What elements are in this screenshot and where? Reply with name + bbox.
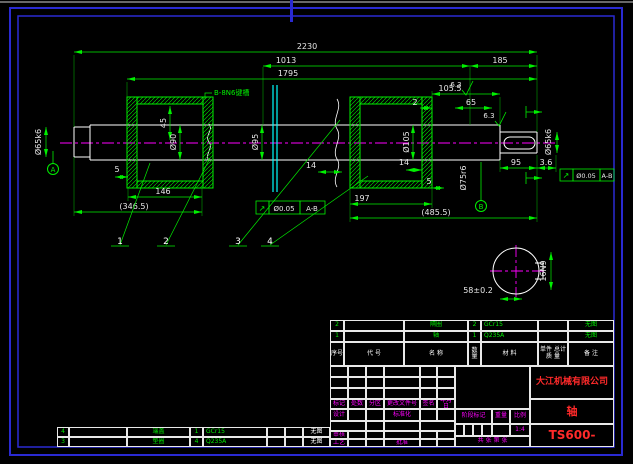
- tb-stage-mark-label: 阶段标记: [455, 409, 492, 424]
- bom2-qty: 4: [190, 437, 203, 447]
- tb-empty: [437, 439, 455, 447]
- roughness-value-1: 6.3: [450, 81, 461, 89]
- tb-empty: [348, 377, 366, 388]
- tb-empty: [330, 388, 348, 399]
- tb-role-design: 设计: [330, 409, 348, 421]
- bom2-weight1: [267, 437, 285, 447]
- tb-empty: [384, 377, 420, 388]
- runout-symbol-1: ↗: [259, 204, 266, 213]
- tb-empty: [420, 439, 437, 447]
- dim-plate14b: 14: [399, 158, 409, 167]
- tb-scale-value: 1:4: [510, 424, 530, 436]
- tolerance-datum-1: A-B: [306, 205, 318, 213]
- bom2-material: GCr15: [203, 427, 267, 437]
- dim-seg197: 197: [354, 194, 369, 203]
- tb-empty: [366, 421, 384, 431]
- dim-d95: Ø95: [250, 134, 260, 150]
- tb-empty: [420, 431, 437, 439]
- dim-right-end: 185: [492, 56, 507, 65]
- tb-empty-large: [455, 366, 530, 409]
- bom-header-name: 名 称: [404, 342, 468, 366]
- tb-empty: [330, 377, 348, 388]
- bom2-material: Q235A: [203, 437, 267, 447]
- tb-rev-sign: 签名: [420, 399, 437, 409]
- dim-mid: 1013: [276, 56, 296, 65]
- tb-empty: [348, 409, 366, 421]
- tb-empty: [437, 431, 455, 439]
- bom-header-qty: 数量: [468, 342, 481, 366]
- hub-right: [350, 97, 432, 188]
- dim-seg146: 146: [155, 187, 170, 196]
- bom-cell-qty: 2: [468, 320, 481, 331]
- tb-empty: [366, 377, 384, 388]
- roughness-value-2: 6.3: [483, 112, 494, 120]
- tb-company: 大江机械有限公司: [530, 366, 614, 399]
- bom-cell-material: Q235A: [481, 331, 538, 342]
- dim-chamfer-r: 5: [426, 177, 431, 186]
- bom-header-remark: 备 注: [568, 342, 614, 366]
- tb-rev-docno: 更改文件号: [384, 399, 420, 409]
- bom2-remark: 无图: [303, 437, 330, 447]
- datum-b: B: [476, 162, 487, 212]
- tb-rev-zone: 分区: [366, 399, 384, 409]
- dim-plate14a: 14: [306, 161, 316, 170]
- keyway-note-text: B-8N6键槽: [214, 88, 249, 97]
- tb-rev-date: 年月日: [437, 399, 455, 409]
- tb-empty: [437, 377, 455, 388]
- bom-cell-remark: 无图: [568, 331, 614, 342]
- tb-part-name: 轴: [530, 399, 614, 424]
- bom-cell-weight: [538, 320, 568, 331]
- dim-end36: 3.6: [540, 158, 553, 167]
- bom-header-weight-bottom: 质 量: [546, 354, 560, 361]
- bom2-weight2: [285, 427, 303, 437]
- tb-empty: [437, 388, 455, 399]
- tolerance-value-2: Ø0.05: [576, 172, 596, 180]
- dim-seg485: (485.5): [421, 208, 450, 217]
- dim-d65-right: Ø65k6: [543, 129, 553, 155]
- section-key-width: 16N9: [539, 260, 548, 281]
- tb-empty: [348, 388, 366, 399]
- tb-weight-value: [492, 424, 510, 436]
- bom-cell-name: 轴: [404, 331, 468, 342]
- balloon-3: 3: [235, 237, 241, 247]
- tb-rev-mark: 标记: [330, 399, 348, 409]
- tb-empty: [437, 366, 455, 377]
- bom2-seq: 3: [57, 437, 69, 447]
- bom-header-material: 材 料: [481, 342, 538, 366]
- dim-inner: 1795: [278, 69, 298, 78]
- dim-d75: Ø75r6: [458, 166, 468, 191]
- tb-empty: [366, 409, 384, 421]
- bom-cell-code: [344, 331, 404, 342]
- runout-symbol-2: ↗: [563, 171, 570, 180]
- tb-empty: [366, 366, 384, 377]
- tb-empty: [366, 431, 384, 439]
- tb-empty: [348, 439, 366, 447]
- bom-header-code: 代 号: [344, 342, 404, 366]
- web-lines: [273, 85, 277, 192]
- dim-gap2: 2: [412, 98, 417, 107]
- dim-overall: 2230: [297, 42, 317, 51]
- tb-empty: [348, 431, 366, 439]
- bom2-remark: 无图: [303, 427, 330, 437]
- tb-drawing-number: TS600-: [530, 424, 614, 447]
- tb-role-approve: 批准: [384, 439, 420, 447]
- tb-empty: [437, 409, 455, 421]
- dim-d105: Ø105: [401, 131, 411, 153]
- tb-weight-label: 重量: [492, 409, 510, 424]
- tb-role-process: 工艺: [330, 439, 348, 447]
- bom-cell-remark: 无图: [568, 320, 614, 331]
- tb-empty: [420, 366, 437, 377]
- datum-a-label: A: [51, 166, 56, 174]
- bom2-name: 端盖: [127, 427, 190, 437]
- tb-stage-box: [464, 424, 473, 436]
- bom-cell-weight: [538, 331, 568, 342]
- balloon-1: 1: [117, 237, 123, 247]
- tb-role-review: 审核: [330, 431, 348, 439]
- tb-empty: [420, 421, 455, 431]
- drawing-sheet: 2230 1013 185 1795 105.5 2 65 95 3.6 146…: [0, 0, 633, 464]
- tb-empty: [366, 439, 384, 447]
- tb-empty: [384, 431, 420, 439]
- bom2-weight2: [285, 437, 303, 447]
- bom2-code: [69, 427, 127, 437]
- tb-empty: [420, 377, 437, 388]
- tb-empty: [330, 421, 366, 431]
- balloon-numbers: 1 2 3 4: [117, 237, 273, 247]
- dim-d65-left: Ø65k6: [33, 129, 43, 155]
- tb-scale-label: 比例: [510, 409, 530, 424]
- tb-empty: [366, 388, 384, 399]
- bom-cell-qty: 1: [468, 331, 481, 342]
- tolerance-datum-2: A-B: [602, 172, 613, 180]
- bom-cell-code: [344, 320, 404, 331]
- tb-empty: [348, 366, 366, 377]
- bom2-code: [69, 437, 127, 447]
- dim-hub-width: 45: [159, 118, 168, 128]
- tb-stage-box: [482, 424, 492, 436]
- bom-cell-name: 隔圈: [404, 320, 468, 331]
- shaft-outline: [74, 99, 543, 294]
- section-cut-arrows: [526, 106, 542, 184]
- tb-empty: [330, 366, 348, 377]
- bom2-weight1: [267, 427, 285, 437]
- tb-role-standardize: 标准化: [384, 409, 420, 421]
- bom2-qty: 1: [190, 427, 203, 437]
- bom2-name: 垫圈: [127, 437, 190, 447]
- dimension-texts: 2230 1013 185 1795 105.5 2 65 95 3.6 146…: [33, 42, 553, 295]
- tb-empty: [384, 421, 420, 431]
- tb-empty: [384, 366, 420, 377]
- tolerance-value-1: Ø0.05: [273, 205, 294, 213]
- bom-cell-seq: 2: [330, 320, 344, 331]
- tb-sheet-info: 共 张 第 张: [455, 436, 530, 447]
- bom2-seq: 4: [57, 427, 69, 437]
- balloon-2: 2: [163, 237, 169, 247]
- bom-header-seq: 序号: [330, 342, 344, 366]
- dim-chamfer-l: 5: [114, 165, 119, 174]
- dim-d90: Ø90: [168, 134, 178, 150]
- tb-empty: [384, 388, 420, 399]
- tb-empty: [420, 388, 437, 399]
- tb-stage-box: [455, 424, 464, 436]
- datum-a: A: [48, 151, 59, 175]
- section-key-depth: 58±0.2: [463, 286, 493, 295]
- balloon-4: 4: [267, 237, 273, 247]
- bom-cell-material: GCr15: [481, 320, 538, 331]
- tb-empty: [420, 409, 437, 421]
- bom-cell-seq: 1: [330, 331, 344, 342]
- dimension-lines: [46, 52, 557, 299]
- bom-header-weight: 单件 总计 质 量: [538, 342, 568, 366]
- tb-rev-count: 处数: [348, 399, 366, 409]
- dim-key95: 95: [511, 158, 521, 167]
- tb-stage-box: [473, 424, 482, 436]
- dim-key-len-top: 65: [466, 98, 476, 107]
- centering-mark: [290, 0, 293, 22]
- datum-b-label: B: [479, 203, 484, 211]
